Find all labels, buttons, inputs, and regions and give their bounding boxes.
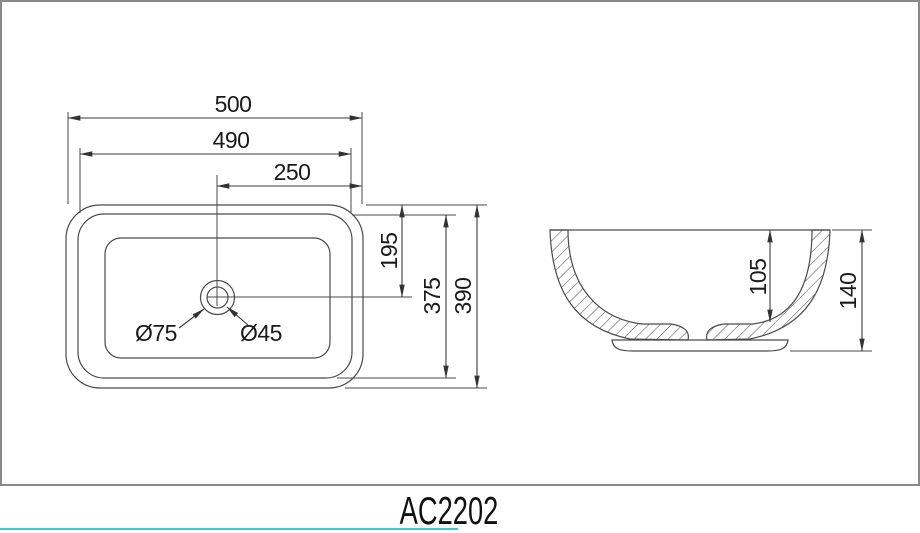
technical-drawing-panel: 500 490 250 195 375 390 Ø75 Ø45 105 140 [0,0,920,486]
dim-label-105: 105 [745,259,771,296]
side-view-left-wall-section [550,230,688,340]
dim-label-390: 390 [450,278,476,315]
top-view: 500 490 250 195 375 390 Ø75 Ø45 [66,91,487,388]
dim-label-140: 140 [835,273,861,310]
sink-drawing-svg: 500 490 250 195 375 390 Ø75 Ø45 105 140 [2,2,918,484]
dim-label-195: 195 [376,233,402,270]
dim-label-dia45: Ø45 [240,320,282,346]
dim-label-375: 375 [419,278,445,315]
model-label: AC2202 [400,496,499,528]
side-view: 105 140 [550,230,872,351]
side-view-base-plate [612,340,788,351]
dim-label-dia75: Ø75 [135,320,177,346]
dim-label-490: 490 [213,127,250,153]
dim-label-250: 250 [274,159,311,185]
dim-label-500: 500 [215,91,252,117]
leader-line-dia75 [179,309,204,328]
